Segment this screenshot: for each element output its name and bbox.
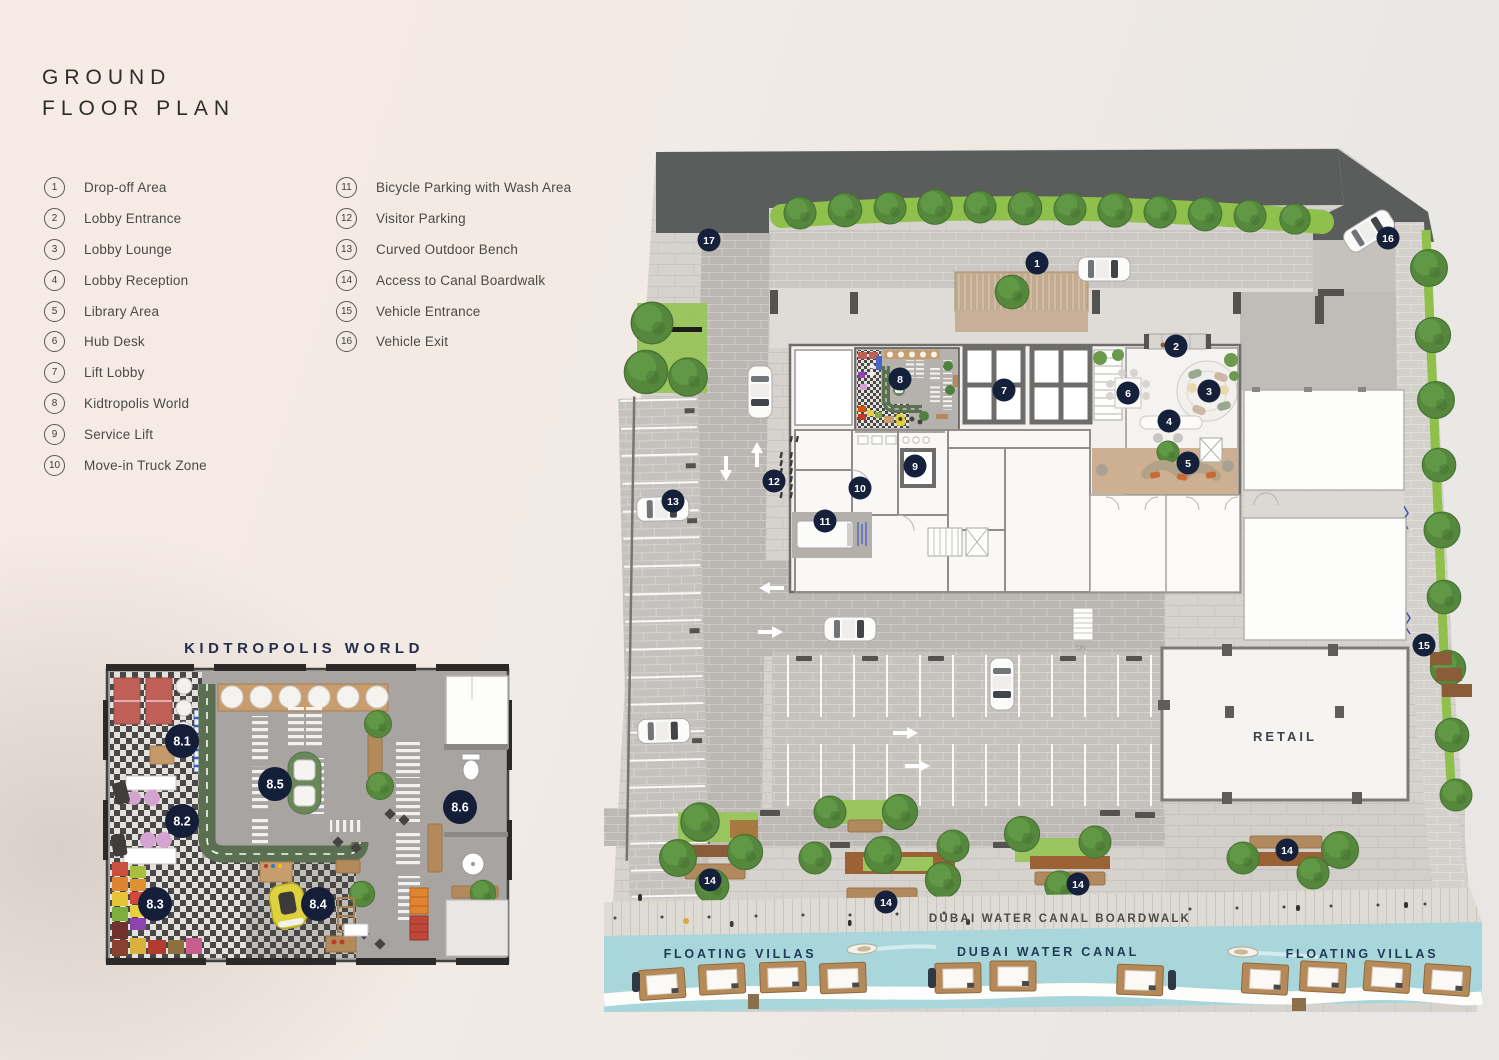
plan-badge: 5 xyxy=(1177,452,1200,475)
svg-text:8.2: 8.2 xyxy=(173,814,190,828)
canal: FLOATING VILLAS DUBAI WATER CANAL FLOATI… xyxy=(604,922,1482,1012)
plan-badge: 11 xyxy=(814,510,837,533)
svg-text:5: 5 xyxy=(1185,458,1191,470)
plan-badge: 14 xyxy=(1067,873,1090,896)
svg-text:3: 3 xyxy=(1206,386,1212,398)
plan-badge: 16 xyxy=(1377,227,1400,250)
svg-text:9: 9 xyxy=(912,461,918,473)
plan-badge: 2 xyxy=(1165,335,1188,358)
inset-badge: 8.5 xyxy=(258,767,292,801)
plan-badge: 7 xyxy=(993,379,1016,402)
svg-text:1: 1 xyxy=(1034,258,1040,270)
stairs xyxy=(1073,608,1093,640)
lawn-bench xyxy=(668,327,702,332)
svg-text:14: 14 xyxy=(704,875,716,887)
svg-text:8.1: 8.1 xyxy=(173,734,190,748)
retail: RETAIL xyxy=(1158,644,1408,804)
moored-boat xyxy=(632,972,640,992)
svg-text:14: 14 xyxy=(880,897,892,909)
inset-badge: 8.1 xyxy=(165,724,199,758)
pier xyxy=(748,994,759,1009)
inset-skate-island xyxy=(288,752,321,814)
driving-car xyxy=(824,617,876,641)
plan-badge: 15 xyxy=(1413,634,1436,657)
plan-badge: 8 xyxy=(889,368,912,391)
floating-villas-left-label: FLOATING VILLAS xyxy=(664,947,817,961)
plan-badge: 3 xyxy=(1198,380,1221,403)
inset-badge: 8.6 xyxy=(443,790,477,824)
svg-text:8.3: 8.3 xyxy=(146,897,163,911)
kidtropolis-inset: KIDTROPOLIS WORLD xyxy=(103,640,512,965)
kidtropolis-room xyxy=(855,348,959,430)
dubai-water-canal-label: DUBAI WATER CANAL xyxy=(957,945,1139,959)
plan-badge: 10 xyxy=(849,477,872,500)
plan-badge: 14 xyxy=(699,869,722,892)
stair-dn-label: DN xyxy=(1076,645,1086,652)
boardwalk-label: DUBAI WATER CANAL BOARDWALK xyxy=(929,913,1191,925)
moored-boat xyxy=(1168,970,1176,990)
plan-badge: 13 xyxy=(662,490,685,513)
inset-badge: 8.2 xyxy=(165,804,199,838)
inset-badge: 8.4 xyxy=(301,887,335,921)
plan-badge: 4 xyxy=(1158,410,1181,433)
svg-text:8.6: 8.6 xyxy=(451,800,468,814)
retail-label: RETAIL xyxy=(1253,729,1317,744)
plan-badge: 17 xyxy=(698,229,721,252)
parked-car xyxy=(638,718,691,743)
drop-off-car xyxy=(1078,257,1130,281)
plan-badge: 12 xyxy=(763,470,786,493)
svg-text:2: 2 xyxy=(1173,341,1179,353)
floating-villas-right-label: FLOATING VILLAS xyxy=(1286,947,1439,961)
svg-text:6: 6 xyxy=(1125,388,1131,400)
svg-text:8.5: 8.5 xyxy=(266,777,283,791)
svg-text:8.4: 8.4 xyxy=(309,897,326,911)
svg-text:17: 17 xyxy=(703,235,715,247)
svg-text:14: 14 xyxy=(1281,845,1293,857)
svg-text:10: 10 xyxy=(854,483,866,495)
svg-text:15: 15 xyxy=(1418,640,1430,652)
svg-text:8: 8 xyxy=(897,374,903,386)
middle-parking xyxy=(772,652,1164,808)
svg-text:11: 11 xyxy=(819,516,830,528)
moored-boat xyxy=(928,968,936,988)
svg-text:14: 14 xyxy=(1072,879,1084,891)
left-lawn xyxy=(624,302,707,396)
inset-title: KIDTROPOLIS WORLD xyxy=(184,640,424,657)
stairs xyxy=(928,528,962,556)
inset-badge: 8.3 xyxy=(138,887,172,921)
entering-car xyxy=(748,366,772,418)
service-rooms xyxy=(795,430,1090,592)
svg-text:16: 16 xyxy=(1382,233,1394,245)
cyclist xyxy=(683,918,689,924)
svg-text:4: 4 xyxy=(1166,416,1172,428)
floor-plan-canvas: DUBAI WATER CANAL BOARDWALK FLOATING VIL… xyxy=(0,0,1499,1060)
plan-badge: 1 xyxy=(1026,252,1049,275)
plan-badge: 14 xyxy=(875,891,898,914)
svg-text:7: 7 xyxy=(1001,385,1007,397)
pier xyxy=(1292,998,1306,1011)
parked-car xyxy=(990,658,1014,710)
plan-badge: 9 xyxy=(904,455,927,478)
svg-text:13: 13 xyxy=(667,496,679,508)
plan-badge: 6 xyxy=(1117,382,1140,405)
plan-badge: 14 xyxy=(1276,839,1299,862)
svg-text:12: 12 xyxy=(768,476,780,488)
